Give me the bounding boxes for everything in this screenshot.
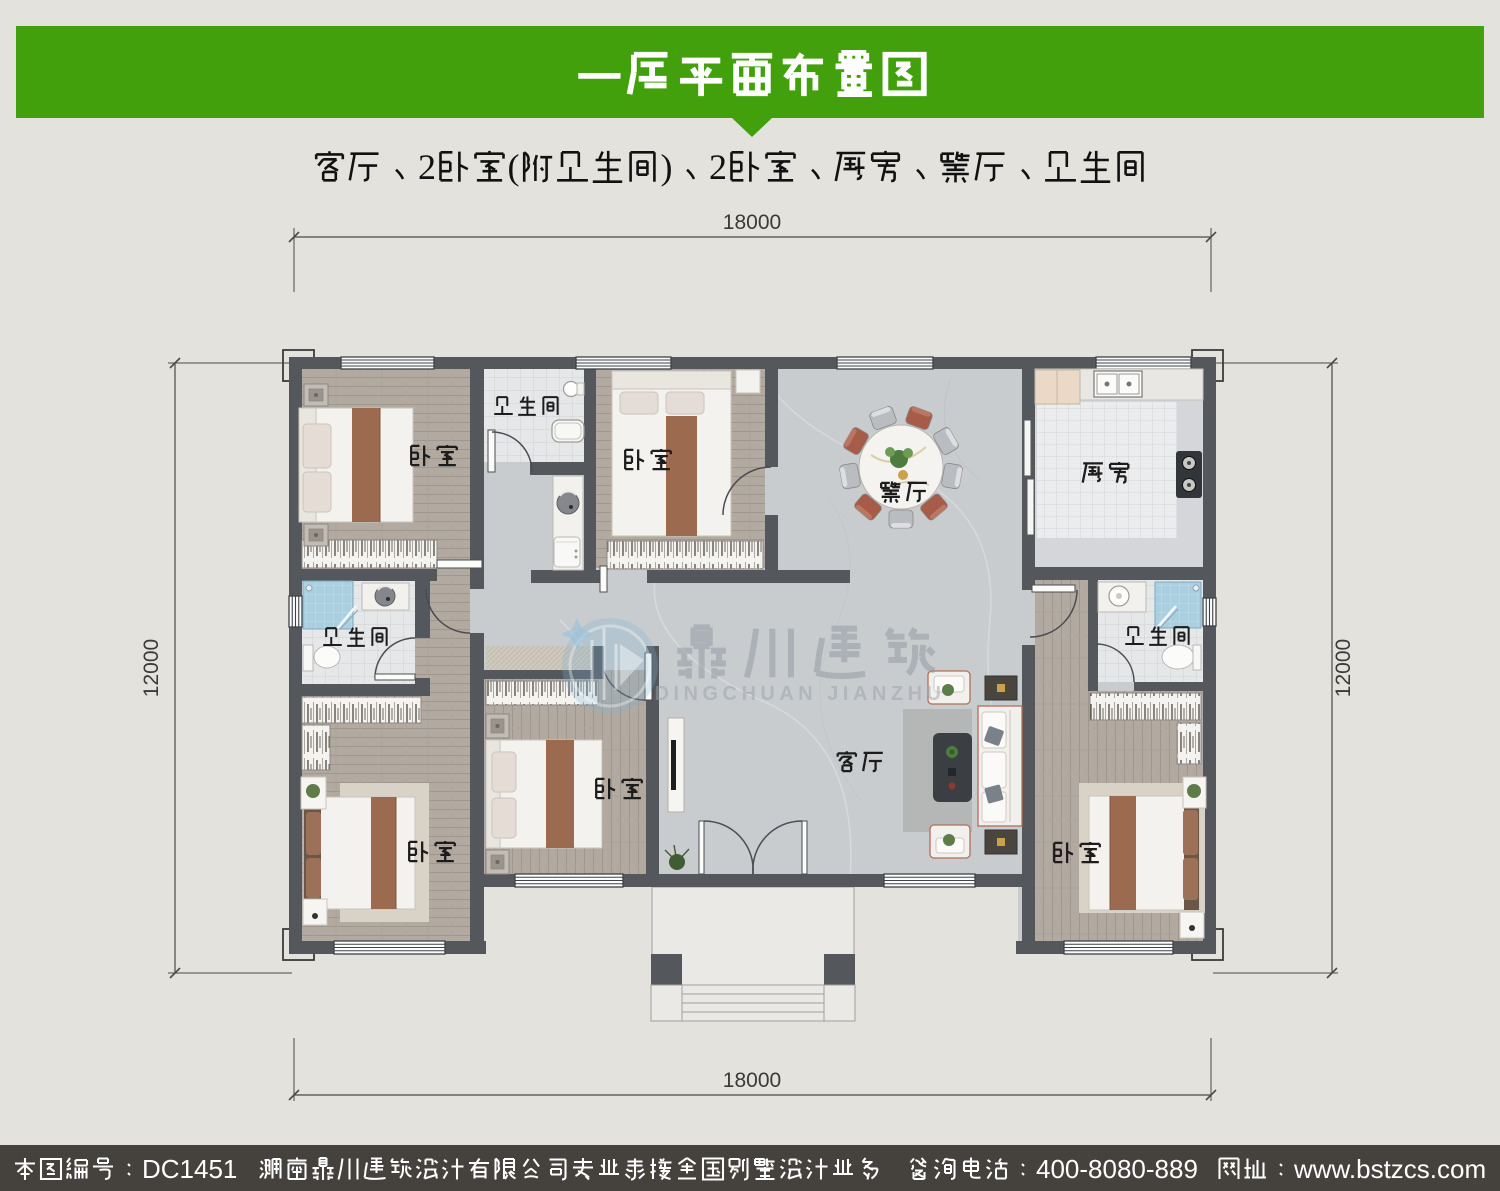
svg-text:2: 2 xyxy=(709,147,727,187)
svg-text:400-8080-889: 400-8080-889 xyxy=(1036,1154,1198,1184)
svg-text:2: 2 xyxy=(418,147,436,187)
svg-text:12000: 12000 xyxy=(140,639,163,697)
svg-text:): ) xyxy=(661,147,673,187)
svg-text:DINGCHUAN JIANZHU: DINGCHUAN JIANZHU xyxy=(655,683,946,705)
svg-text:18000: 18000 xyxy=(723,211,781,234)
svg-text:12000: 12000 xyxy=(1332,639,1355,697)
svg-text:18000: 18000 xyxy=(723,1069,781,1092)
svg-text:DC1451: DC1451 xyxy=(142,1154,237,1184)
svg-text:(: ( xyxy=(508,147,520,187)
svg-text:www.bstzcs.com: www.bstzcs.com xyxy=(1293,1154,1486,1184)
